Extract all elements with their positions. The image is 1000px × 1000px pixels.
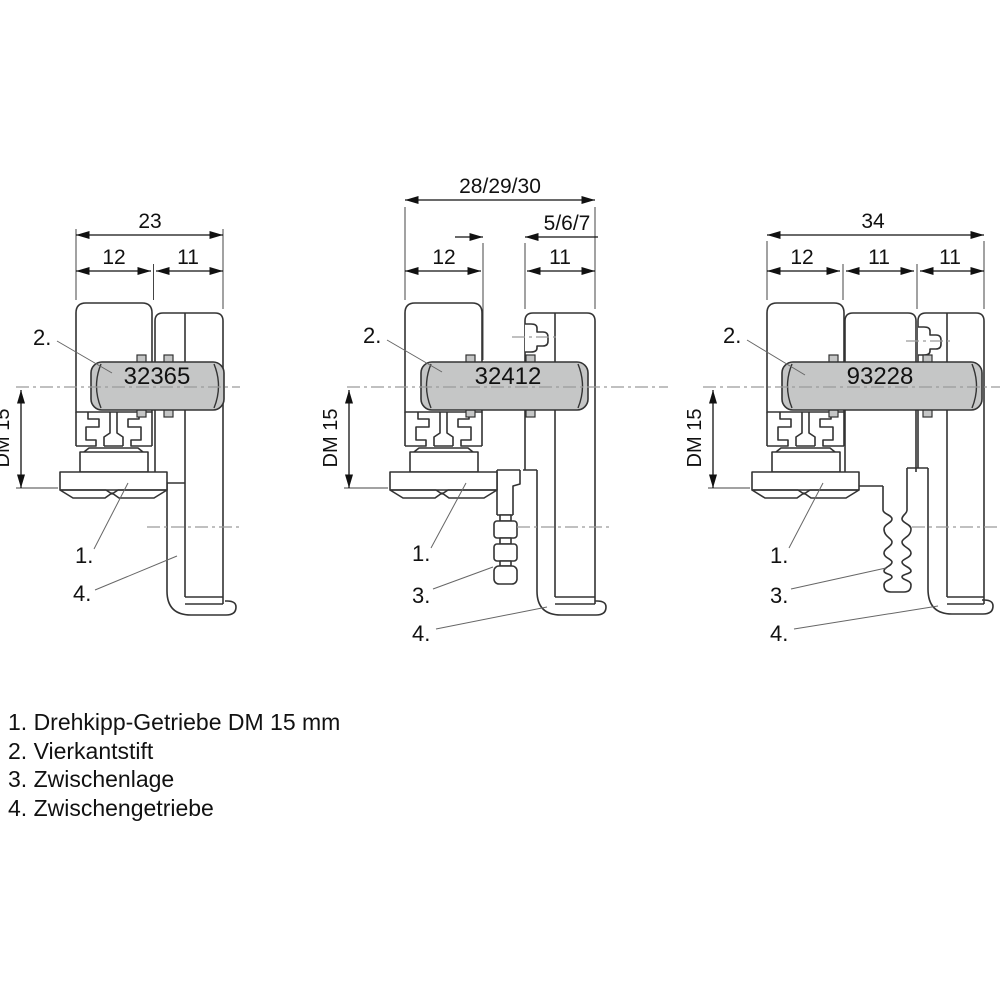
legend-item-bracket: 4. Zwischengetriebe — [8, 794, 340, 823]
figure-variant-28-29-30: 28/29/30 5/6/7 12 11 — [320, 175, 668, 646]
part-number-left-figure: 32365 — [124, 363, 191, 390]
legend-item-spacer: 3. Zwischenlage — [8, 765, 340, 794]
dm-dimension-left-figure: DM 15 — [0, 390, 58, 488]
legend-item-gear: 1. Drehkipp-Getriebe DM 15 mm — [8, 708, 340, 737]
callout-spindle: 2. — [363, 323, 381, 348]
callout-gear: 1. — [770, 543, 788, 568]
dim-frame: 11 — [939, 246, 961, 269]
dm-label: DM 15 — [684, 409, 706, 468]
legend: 1. Drehkipp-Getriebe DM 15 mm 2. Vierkan… — [8, 708, 340, 822]
technical-drawing-page: 23 12 11 — [0, 0, 1000, 1000]
part-number-middle-figure: 32412 — [475, 363, 542, 390]
dim-intermediate: 11 — [868, 246, 890, 269]
figure-variant-23: 23 12 11 — [0, 210, 240, 615]
dm-dimension-middle-figure: DM 15 — [320, 390, 388, 488]
callout-gear: 1. — [75, 543, 93, 568]
dim-total: 34 — [861, 210, 885, 233]
part-number-right-figure: 93228 — [847, 363, 914, 390]
fitting-cross-section-diagram: 23 12 11 — [0, 0, 1000, 1000]
dim-total: 23 — [138, 210, 161, 233]
dimension-lines-left-figure: 23 12 11 — [76, 210, 223, 309]
dm-dimension-right-figure: DM 15 — [684, 390, 750, 488]
dimension-lines-right-figure: 34 12 11 11 — [767, 210, 984, 309]
dim-sash: 12 — [432, 246, 455, 269]
callout-bracket: 4. — [770, 621, 788, 646]
dim-frame: 11 — [177, 246, 199, 269]
dm-label: DM 15 — [320, 409, 342, 468]
callout-gear: 1. — [412, 541, 430, 566]
legend-item-spindle: 2. Vierkantstift — [8, 737, 340, 766]
callout-spacer: 3. — [770, 583, 788, 608]
dm-label: DM 15 — [0, 409, 14, 468]
dim-total: 28/29/30 — [459, 175, 541, 198]
callout-spacer: 3. — [412, 583, 430, 608]
dim-gap: 5/6/7 — [544, 212, 591, 235]
callout-spindle: 2. — [723, 323, 741, 348]
dim-sash: 12 — [102, 246, 125, 269]
spacer-bellows-right-figure — [858, 468, 911, 592]
callout-bracket: 4. — [73, 581, 91, 606]
callout-spindle: 2. — [33, 325, 51, 350]
dim-sash: 12 — [790, 246, 813, 269]
callout-bracket: 4. — [412, 621, 430, 646]
dim-frame: 11 — [549, 246, 571, 269]
spacer-stack-middle-figure — [494, 470, 520, 584]
figure-variant-34: 34 12 11 11 — [684, 210, 1000, 646]
